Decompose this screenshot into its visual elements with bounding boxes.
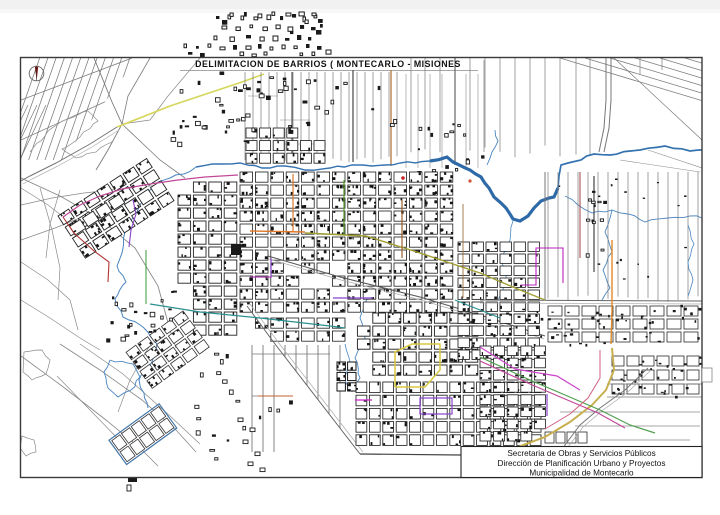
svg-text:Secretaria de Obras y Servicio: Secretaria de Obras y Servicios Públicos (507, 449, 655, 458)
svg-text:DELIMITACION DE BARRIOS ( MONT: DELIMITACION DE BARRIOS ( MONTECARLO - M… (195, 59, 461, 69)
svg-text:Municipalidad de Montecarlo: Municipalidad de Montecarlo (529, 469, 634, 478)
svg-text:Dirección de Planificación Urb: Dirección de Planificación Urbano y Proy… (498, 459, 666, 468)
